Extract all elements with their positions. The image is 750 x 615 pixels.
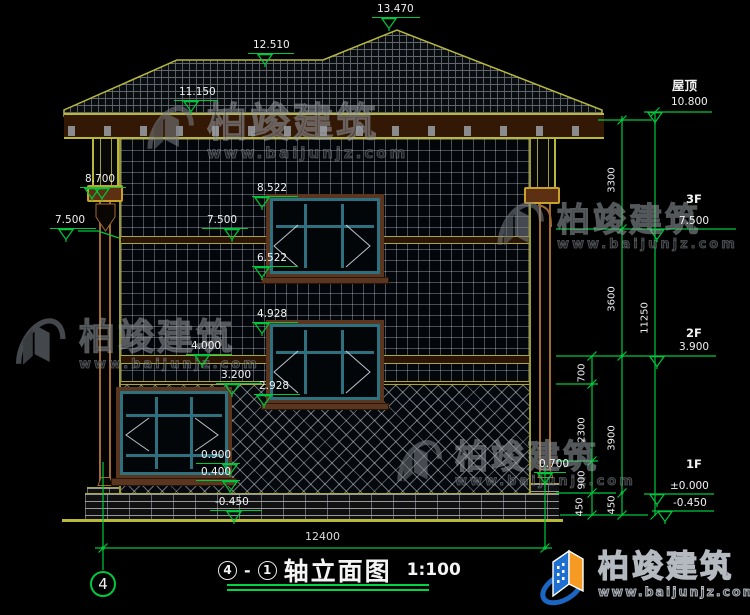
level-column-capital: 8.700 — [80, 174, 126, 188]
dim-450-inner: 450 — [575, 497, 586, 516]
title-axis-start: 4 — [218, 561, 237, 580]
label-3f-level: 7.500 — [679, 215, 709, 227]
dim-3600: 3600 — [607, 286, 618, 311]
label-1f-level: ±0.000 — [670, 480, 709, 492]
level-7500-left: 7.500 — [50, 215, 96, 229]
dim-700: 700 — [577, 363, 588, 382]
title-underline-1 — [227, 584, 429, 586]
level-sill-low: 0.400 — [196, 467, 240, 481]
dim-450-outer: 450 — [607, 495, 618, 514]
level-pipe-foot: 0.700 — [534, 459, 566, 473]
title-scale: 1:100 — [407, 560, 461, 580]
label-3f: 3F — [686, 192, 702, 206]
level-f2-band: 4.000 — [186, 341, 232, 355]
label-roof-level: 10.800 — [671, 96, 708, 108]
level-grade-left: -0.450 — [210, 497, 262, 511]
level-roof-ridge: 12.510 — [248, 40, 294, 54]
dim-900: 900 — [577, 470, 588, 489]
label-grade-level: -0.450 — [673, 497, 707, 509]
dim-3900: 3900 — [607, 425, 618, 450]
dim-12400-total-width: 12400 — [305, 530, 340, 543]
level-f3-band: 7.500 — [202, 215, 248, 229]
level-w3-top: 8.522 — [252, 183, 298, 197]
level-w3-bottom: 6.522 — [252, 253, 298, 267]
label-2f: 2F — [686, 326, 702, 340]
elevation-drawing-canvas: 柏竣建筑 www.baijunjz.com 柏竣建筑 www.baijunjz.… — [0, 0, 750, 615]
dimension-linework — [0, 0, 750, 615]
drawing-title: 4 - 1 轴立面图 1:100 — [218, 552, 461, 588]
title-separator: - — [244, 561, 251, 580]
dim-11250-total: 11250 — [640, 302, 651, 334]
title-text: 轴立面图 — [284, 552, 392, 588]
level-roof-peak: 13.470 — [372, 4, 420, 18]
label-1f: 1F — [686, 457, 702, 471]
label-roof-name: 屋顶 — [672, 75, 697, 94]
axis-bubble-4: 4 — [90, 571, 116, 597]
brand-url: www.baijunjz.com — [598, 583, 750, 602]
label-2f-level: 3.900 — [679, 341, 709, 353]
level-sill-high: 0.900 — [196, 450, 240, 464]
dim-3300: 3300 — [607, 167, 618, 192]
brand-logo: 柏竣建筑 www.baijunjz.com — [540, 546, 750, 608]
title-underline-2 — [227, 589, 429, 591]
level-w2-top: 4.928 — [252, 309, 298, 323]
dim-2300: 2300 — [577, 417, 588, 442]
brand-name: 柏竣建筑 — [598, 552, 750, 583]
baijun-logo-color-icon — [540, 546, 592, 608]
level-roof-eave: 11.150 — [174, 87, 218, 101]
level-w2-bottom: 2.928 — [254, 381, 300, 395]
title-axis-end: 1 — [258, 561, 277, 580]
